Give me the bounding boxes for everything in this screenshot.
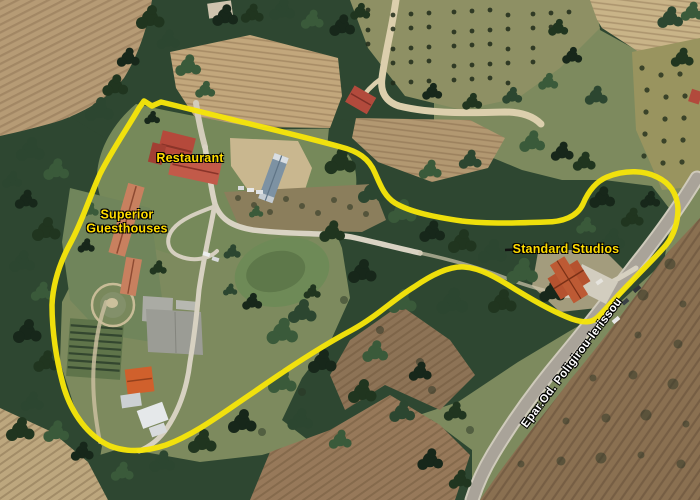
- label-superior-line2: Guesthouses: [86, 222, 167, 236]
- white-shed-1: [120, 393, 142, 409]
- label-restaurant: Restaurant: [156, 151, 223, 165]
- orange-roof-building: [125, 366, 155, 394]
- label-standard-studios: Standard Studios: [513, 242, 620, 256]
- label-superior-guesthouses: Superior Guesthouses: [86, 208, 167, 236]
- satellite-map: Restaurant Superior Guesthouses Standard…: [0, 0, 700, 500]
- label-superior-line1: Superior: [86, 208, 167, 222]
